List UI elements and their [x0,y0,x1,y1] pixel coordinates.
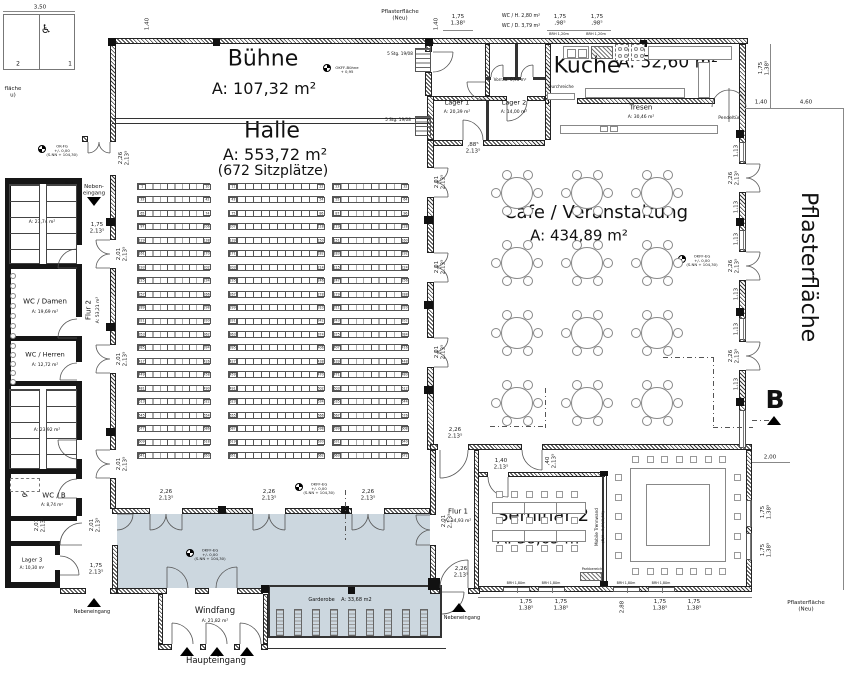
door-arc [60,363,77,380]
entrance-label-nebeneingang-nw: Neben- eingang [83,184,105,196]
seat-number: 449 [139,373,145,377]
chair [556,517,563,524]
chair [593,170,603,180]
seat-number-chip: 535 [333,399,341,405]
seat-number: 640 [402,440,408,444]
burner [618,47,622,51]
wall-segment [158,594,163,644]
seat-number: 224 [402,265,408,269]
seat-number-chip: 640 [401,439,409,445]
dimension-label: 1,75 1,38⁵ [519,599,534,612]
seat-number: 545 [139,413,145,417]
seat-number: 631 [334,440,340,444]
wc-fixture [10,352,16,358]
seat-number-chip: 554 [203,412,211,418]
seat-number-chip: 534 [317,399,325,405]
seat-number: 214 [318,265,324,269]
chair [571,517,578,524]
entrance-arrow-nebeneingang-nw [87,197,101,206]
seat-number-chip: 235 [229,278,237,284]
seat-number: 343 [334,319,340,323]
seat-row: 5564 [332,196,408,203]
door-arc [433,52,453,72]
seat-row: 321330 [137,318,210,325]
seat-row: 225234 [137,277,210,284]
dimension-label: 2,26 2,13⁵ [159,489,174,502]
seat-number: 555 [230,413,236,417]
room-label-wc-h: WC / H. 2,80 m² [502,13,540,18]
seat-number-chip: 374 [317,331,325,337]
wall-segment [430,450,436,515]
window [746,533,752,560]
room-label-buehne: Bühne [228,48,298,73]
chair [642,310,652,320]
wc-fixture [10,273,16,279]
seat-row: 203214 [228,264,324,271]
seat-number-chip: 170 [203,251,211,257]
seat-number-chip: 171 [229,251,237,257]
seat-number-chip: 289 [138,305,146,311]
seat-number-chip: 545 [138,412,146,418]
chair [642,240,652,250]
site-boundary-line [745,108,843,109]
chair [719,456,726,463]
chair [734,533,741,540]
seat-number-chip: 599 [333,426,341,432]
chair [511,491,518,498]
chair [502,346,512,356]
chair [734,494,741,501]
seminar1-table-ring-inner [646,484,710,546]
chair [593,346,603,356]
seminar2-table [492,530,586,542]
chair [615,474,622,481]
seat-number: 310 [318,306,324,310]
dimension-label: 1,13 [733,201,739,213]
dimension-label: 1,40 [433,18,439,30]
seat-row: 599608 [332,425,408,432]
seat-number-chip: 225 [138,278,146,284]
chair [603,188,613,198]
entrance-label-nebeneingang-se: Nebeneingang [444,615,480,621]
seat-number-chip: 491 [229,385,237,391]
room-label-wc-damen: WC / Damen [23,298,67,306]
window-mullion [552,588,553,593]
seat-row: 311320 [332,304,408,311]
wall-segment [545,44,551,140]
seat-number-chip: 193 [138,264,146,270]
chair [572,276,582,286]
door-arc [206,623,227,644]
chair [663,310,673,320]
window [538,587,565,592]
wc-fixture [10,379,16,385]
burner [618,54,622,58]
wall-segment [427,197,434,253]
door-arc [746,164,760,192]
seat-number: 321 [139,319,145,323]
chair [673,188,683,198]
kalt-counter [585,88,685,98]
chair [572,310,582,320]
level-marker-okff-eg-halle: OKFF-EG +/- 0,00 (S.NN + 104,30) [303,483,334,496]
seat-number-chip: 55 [333,197,341,203]
seat-number-chip: 22 [317,184,325,190]
chair [511,545,518,552]
chair [661,456,668,463]
seat-row: 7586 [228,210,324,217]
seats-label-halle: (672 Sitzplätze) [218,164,329,180]
seat-number-chip: 150 [317,237,325,243]
chair [642,206,652,216]
wall-post [108,38,116,46]
seat-number-chip: 631 [333,439,341,445]
chair [491,258,501,268]
chair [593,206,603,216]
seat-number-chip: 651 [229,453,237,459]
seat-row: 235246 [228,277,324,284]
seat-number: 491 [230,386,236,390]
level-marker-okff-eg-foyer: OKFF-EG +/- 0,00 (S.NN + 104,30) [194,549,225,562]
dimension-label: 2,01 2,13⁵ [441,514,454,529]
dimension-label: 2,01 2,13⁵ [34,518,47,533]
wall-segment [110,478,116,509]
chair [572,240,582,250]
chair [690,456,697,463]
seat-number: 330 [204,319,210,323]
seat-row: 193202 [137,264,210,271]
seat-row: 8796 [332,210,408,217]
chair [603,398,613,408]
seat-number-chip: 407 [333,345,341,351]
seat-number-chip: 342 [317,318,325,324]
seat-row: 353362 [137,331,210,338]
wall-segment [440,585,442,638]
area-label-wc-damen: A: 19,69 m² [32,309,58,314]
area-label-windfang: A: 21,82 m² [202,618,228,623]
seat-number: 43 [231,198,235,202]
seat-number: 55 [335,198,339,202]
seat-number: 257 [139,292,145,296]
seat-number: 566 [318,413,324,417]
seat-number-chip: 662 [317,453,325,459]
room-label-tresen: Tresen [630,104,653,112]
level-marker-ok-fg: OK-FG +/- 0,00 (S.NN + 104,30) [46,145,77,158]
seat-number-chip: 587 [229,426,237,432]
wall-post [736,308,744,316]
seat-number-chip: 266 [203,291,211,297]
coat-rack [384,609,392,636]
dimension-label: 1,75 1,38⁵ [653,599,668,612]
seat-number: 278 [318,292,324,296]
seat-row: 97106 [137,223,210,230]
seat-number: 246 [318,279,324,283]
wall-post [425,38,433,46]
label-pendeltuer: Pendeltür [718,115,740,120]
seat-number: 22 [319,185,323,189]
seat-number-chip: 320 [401,305,409,311]
wall-post [106,428,115,436]
wc-fixture [10,283,16,289]
stove [631,44,645,61]
chair [631,398,641,408]
seat-number-chip: 310 [317,305,325,311]
wall-post [218,506,226,514]
sink-basin [567,49,576,58]
seat-number-chip: 96 [401,210,409,216]
window-mullion [627,588,628,593]
seat-number: 406 [318,346,324,350]
seat-row: 183192 [332,250,408,257]
room-label-lager2: Lager 2 [502,99,527,106]
coat-rack [312,609,320,636]
seat-number-chip: 608 [401,426,409,432]
seat-number-chip: 11 [229,184,237,190]
seat-number-chip: 406 [317,345,325,351]
area-label-lager3: A: 10,30 m² [20,566,45,571]
wall-segment [5,264,77,269]
seat-number: 1 [141,185,143,189]
label-brh-kitchen-2: BRH 1,20m [586,32,606,36]
seat-number-chip: 128 [401,224,409,230]
seat-number-chip: 321 [138,318,146,324]
seat-number-chip: 42 [203,197,211,203]
wall-segment [533,77,545,80]
seat-number: 139 [230,239,236,243]
seat-number: 266 [204,292,210,296]
cafe-table [641,317,673,349]
tresen-counter [560,125,718,134]
seat-number-chip: 375 [333,331,341,337]
chair [615,552,622,559]
seat-row: 279288 [332,291,408,298]
wall-segment [508,472,605,477]
seat-row: 161170 [137,250,210,257]
seat-row: 375384 [332,331,408,338]
seat-number-chip: 138 [203,237,211,243]
chair [502,170,512,180]
chair [526,491,533,498]
seat-row: 171182 [228,250,324,257]
wall-segment [515,44,518,77]
wall-segment [427,282,434,338]
seat-number-chip: 215 [333,264,341,270]
seat-number: 183 [334,252,340,256]
seat-number: 586 [204,427,210,431]
door-arc [463,120,483,140]
wc-stall-column [9,184,40,264]
seat-number: 32 [403,185,407,189]
burner [640,54,644,58]
floor-plan: Bühne A: 107,32 m² Halle A: 553,72 m² (6… [0,0,850,674]
dashdot-line [490,426,545,427]
seat-number: 96 [403,212,407,216]
wall-segment [76,498,82,516]
room-label-wc-b: WC / B [42,492,65,500]
seat-number-chip: 567 [333,412,341,418]
wc-fixture [10,303,16,309]
seat-row: 343352 [332,318,408,325]
seat-number: 630 [318,440,324,444]
seat-number-chip: 202 [203,264,211,270]
area-label-flur2: A: 53,21 m² [95,297,100,323]
burner [624,47,628,51]
seat-number: 417 [139,360,145,364]
seat-number-chip: 523 [229,399,237,405]
seat-row: 631640 [332,439,408,446]
seat-number-chip: 65 [138,210,146,216]
wall-segment [82,136,88,142]
seat-row: 641650 [137,452,210,459]
seat-number-chip: 650 [203,453,211,459]
seat-number-chip: 192 [401,251,409,257]
chair [642,346,652,356]
chair [663,240,673,250]
seat-number: 353 [139,333,145,337]
dimension-label: 2,00 [764,454,776,460]
door-arc [96,240,110,268]
door-arc [172,623,193,644]
cafe-table [641,387,673,419]
seat-number-chip: 118 [317,224,325,230]
seat-number: 490 [204,386,210,390]
seat-number-chip: 64 [401,197,409,203]
seat-number: 107 [230,225,236,229]
seat-number: 150 [318,239,324,243]
kitchen-sink-unit [563,46,589,59]
seat-row: 4354 [228,196,324,203]
tresen-fixture [610,126,618,132]
window-mullion [743,319,744,341]
door-arc [96,450,110,478]
wcb-fixture [10,478,40,492]
site-label-pflaster-left-partial: fläche u) [5,86,22,98]
seat-number: 641 [139,454,145,458]
seat-number: 619 [230,440,236,444]
seat-number-chip: 417 [138,358,146,364]
seat-row: 3342 [137,196,210,203]
seat-number-chip: 54 [317,197,325,203]
chair [572,206,582,216]
chair [676,456,683,463]
wall-post [348,587,355,594]
label-durchreiche: Durchreiche [548,85,573,90]
wall-segment [468,588,480,594]
coat-rack [366,609,374,636]
seat-number: 161 [139,252,145,256]
chair [632,456,639,463]
room-label-wc-d: WC / D. 3,79 m² [502,23,540,28]
seat-number-chip: 23 [333,184,341,190]
seat-number: 193 [139,265,145,269]
seat-number-chip: 481 [138,385,146,391]
dimension-label: 2,26 2,13⁵ [728,349,741,364]
dimension-label: 2,01 2,13⁵ [434,175,447,190]
seat-number: 87 [335,212,339,216]
wall-segment [110,44,116,142]
window [613,587,640,592]
seat-number: 267 [230,292,236,296]
seat-number: 225 [139,279,145,283]
chair [663,276,673,286]
wall-post [736,218,744,226]
seat-number-chip: 363 [229,331,237,337]
seat-number-chip: 160 [401,237,409,243]
entrance-label-nebeneingang-sw: Nebeneingang [74,609,110,615]
seat-row: 567576 [332,412,408,419]
seat-number: 375 [334,333,340,337]
seat-number: 672 [402,454,408,458]
seat-number-chip: 74 [203,210,211,216]
seat-number-chip: 448 [401,358,409,364]
chair [663,346,673,356]
dimension-label: 1,40 2,13⁵ [494,458,509,471]
chair [496,517,503,524]
seat-number: 426 [204,360,210,364]
seat-number: 215 [334,265,340,269]
seat-number-chip: 267 [229,291,237,297]
seat-number: 289 [139,306,145,310]
area-label-buehne: A: 107,32 m² [212,80,316,98]
seat-number: 599 [334,427,340,431]
seat-number-chip: 490 [203,385,211,391]
entrance-arrow-haupteingang-1 [180,647,194,656]
seat-number: 202 [204,265,210,269]
area-label-wc-b: A: 8,74 m² [41,503,63,508]
seat-number-chip: 513 [138,399,146,405]
seat-number-chip: 427 [229,358,237,364]
seat-number-chip: 299 [229,305,237,311]
chair [663,206,673,216]
wall-segment [474,450,479,592]
seat-row: 439448 [332,358,408,365]
chair [676,568,683,575]
seat-row: 651662 [228,452,324,459]
wall-segment [110,175,116,240]
chair [631,258,641,268]
seat-number-chip: 106 [203,224,211,230]
chair [642,416,652,426]
dimension-label: 2,01 2,13⁵ [434,260,447,275]
dimension-label: 1,13 [733,233,739,245]
seat-row: 107118 [228,223,324,230]
cafe-table [501,387,533,419]
chair [496,491,503,498]
level-marker-icon [186,549,194,557]
dimension-label: 2,26 2,13⁵ [118,151,131,166]
chair [615,533,622,540]
seat-number: 170 [204,252,210,256]
seat-number: 439 [334,360,340,364]
wall-segment [112,545,118,590]
dimension-label: 2,26 2,13⁵ [361,489,376,502]
wall-post [736,130,744,138]
seat-number: 609 [139,440,145,444]
area-label-lager2: A: 14,00 m² [501,109,527,114]
seat-number-chip: 246 [317,278,325,284]
seat-number-chip: 151 [333,237,341,243]
wall-post [106,218,115,226]
seat-row: 481490 [137,385,210,392]
wall-segment [478,472,488,477]
seat-row: 587598 [228,425,324,432]
wall-segment [261,644,268,650]
chair [541,491,548,498]
seat-number: 235 [230,279,236,283]
seat-number: 23 [335,185,339,189]
seat-number-chip: 75 [229,210,237,216]
seat-number-chip: 214 [317,264,325,270]
